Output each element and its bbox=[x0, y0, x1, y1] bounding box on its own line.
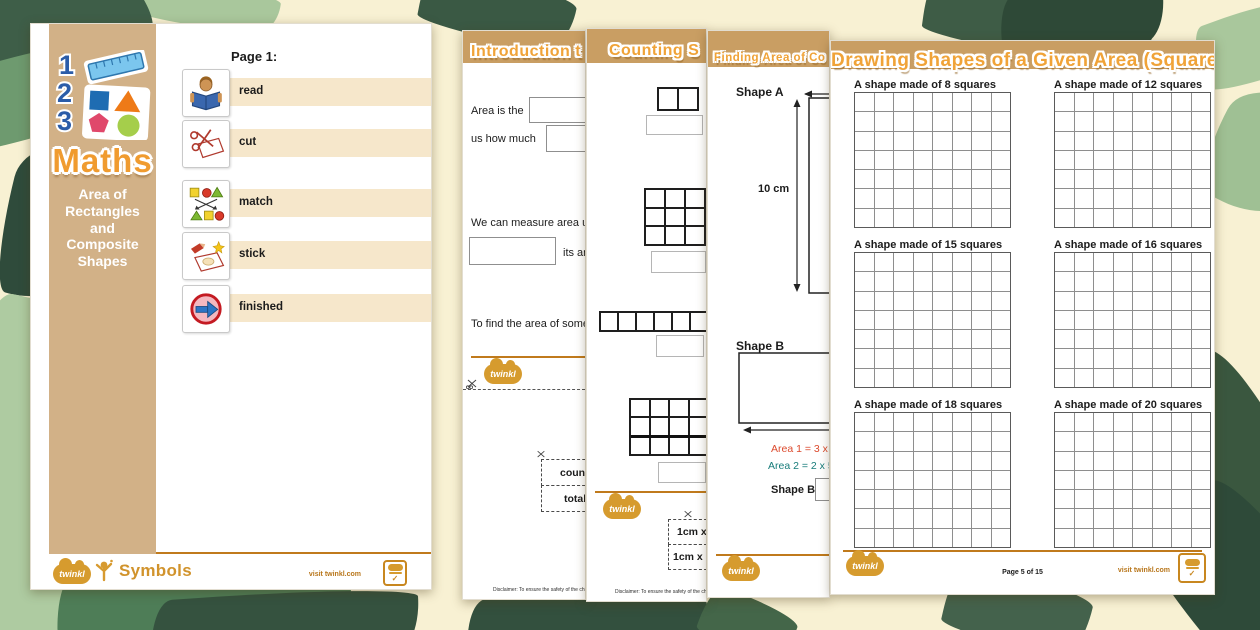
activity-label: match bbox=[239, 196, 273, 208]
worksheet-page-cover: 1 2 3 bbox=[30, 23, 432, 590]
badge-check-icon: ✓ bbox=[1189, 570, 1196, 577]
twinkl-stamp-badge: ✓ bbox=[1178, 553, 1206, 583]
activity-label: finished bbox=[239, 301, 283, 313]
drawing-grid bbox=[854, 412, 1011, 548]
maths-shapes-graphic: 1 2 3 bbox=[51, 50, 153, 140]
read-icon bbox=[187, 74, 225, 112]
activity-stripe bbox=[197, 189, 431, 217]
symbols-person-icon bbox=[93, 558, 115, 584]
activity-stripe bbox=[197, 294, 431, 322]
visit-link-text: visit twinkl.com bbox=[1118, 567, 1170, 574]
answer-box bbox=[656, 335, 704, 357]
grid-section-label: A shape made of 16 squares bbox=[1054, 239, 1202, 251]
drawing-grid bbox=[1054, 412, 1211, 548]
grid-section-label: A shape made of 18 squares bbox=[854, 399, 1002, 411]
activity-stripe bbox=[197, 129, 431, 157]
cover-sidebar: 1 2 3 bbox=[49, 24, 156, 554]
drawing-grid bbox=[1054, 252, 1211, 388]
symbols-label: Symbols bbox=[119, 561, 192, 581]
match-icon bbox=[187, 185, 225, 223]
activity-label: read bbox=[239, 85, 263, 97]
worksheet-text: Area is the bbox=[471, 105, 524, 117]
answer-box bbox=[646, 115, 703, 135]
grid-section-label: A shape made of 8 squares bbox=[854, 79, 996, 91]
footer-rule bbox=[471, 356, 585, 358]
worksheet-page-drawing-shapes: Drawing Shapes of a Given Area (Squares)… bbox=[830, 40, 1215, 595]
twinkl-logo: twinkl bbox=[484, 364, 522, 384]
answer-box bbox=[546, 125, 586, 152]
cut-out-label-row: 1cm x bbox=[668, 519, 707, 545]
svg-text:1: 1 bbox=[59, 50, 74, 80]
worksheet-text: To find the area of some bbox=[471, 318, 586, 330]
answer-box bbox=[658, 462, 706, 483]
badge-cloud-icon bbox=[388, 564, 403, 571]
maths-brand-title: Maths bbox=[49, 142, 156, 180]
svg-text:2: 2 bbox=[57, 78, 72, 108]
badge-check-icon: ✓ bbox=[392, 575, 399, 582]
answer-box bbox=[469, 237, 556, 265]
scissors-icon bbox=[536, 450, 546, 459]
drawing-grid bbox=[854, 252, 1011, 388]
scissors-icon bbox=[466, 379, 478, 389]
activity-label: stick bbox=[239, 248, 265, 260]
cut-out-label-row: 1cm x 1 bbox=[668, 544, 707, 570]
page1-heading: Page 1: bbox=[231, 49, 277, 64]
scissors-icon bbox=[683, 510, 693, 519]
grid-section-label: A shape made of 20 squares bbox=[1054, 399, 1202, 411]
twinkl-logo: twinkl bbox=[603, 499, 641, 519]
cut-out-table-row: count bbox=[541, 459, 586, 486]
worksheet-text: We can measure area us bbox=[471, 217, 586, 229]
activity-label: cut bbox=[239, 136, 256, 148]
answer-box bbox=[529, 97, 586, 123]
worksheet-page-finding-area: Finding Area of Co Shape A 10 cm Shape B… bbox=[707, 30, 830, 598]
height-dimension-label: 10 cm bbox=[758, 183, 789, 195]
activity-card-match bbox=[182, 180, 230, 228]
disclaimer-text: Disclaimer: To ensure the safety of the … bbox=[493, 587, 586, 593]
area2-equation: Area 2 = 2 x 5 bbox=[768, 460, 830, 472]
twinkl-stamp-badge: ✓ bbox=[383, 560, 407, 586]
answer-box bbox=[815, 478, 830, 501]
counting-grid bbox=[657, 87, 699, 111]
shapes-icon bbox=[82, 84, 151, 140]
pack-subtitle: Area of Rectangles and Composite Shapes bbox=[49, 186, 156, 270]
activity-card-finished bbox=[182, 285, 230, 333]
drawing-grid bbox=[854, 92, 1011, 228]
disclaimer-text: Disclaimer: To ensure the safety of the … bbox=[615, 589, 707, 595]
cut-icon bbox=[187, 125, 225, 163]
counting-grid bbox=[644, 188, 707, 246]
grid-section-label: A shape made of 12 squares bbox=[1054, 79, 1202, 91]
answer-box bbox=[651, 251, 706, 273]
twinkl-logo: twinkl bbox=[53, 564, 91, 584]
badge-cloud-icon bbox=[1185, 559, 1200, 566]
activity-stripe bbox=[197, 78, 431, 106]
grid-section-label: A shape made of 15 squares bbox=[854, 239, 1002, 251]
visit-link-text: visit twinkl.com bbox=[309, 571, 361, 578]
shape-b-label: Shape B bbox=[736, 339, 784, 353]
activity-card-read bbox=[182, 69, 230, 117]
twinkl-symbols-logo: Symbols bbox=[93, 558, 192, 584]
cut-line bbox=[463, 389, 585, 390]
twinkl-logo: twinkl bbox=[722, 561, 760, 581]
cut-out-table-row: total bbox=[541, 485, 586, 512]
worksheet-title: Counting S bbox=[609, 42, 699, 60]
activity-stripe bbox=[197, 241, 431, 269]
footer-rule bbox=[843, 550, 1202, 552]
worksheet-page-counting: Counting S twinkl 1cm x 1cm x 1 Disclaim… bbox=[586, 28, 707, 602]
activity-card-cut bbox=[182, 120, 230, 168]
footer-rule bbox=[156, 552, 431, 554]
worksheet-title: Drawing Shapes of a Given Area (Squares) bbox=[831, 50, 1214, 72]
drawing-grid bbox=[1054, 92, 1211, 228]
worksheet-title: Introduction t bbox=[471, 43, 581, 61]
shape-diagrams bbox=[708, 31, 830, 598]
preview-canvas: 1 2 3 bbox=[0, 0, 1260, 630]
area1-equation: Area 1 = 3 x 2 bbox=[771, 443, 830, 455]
worksheet-text: its area bbox=[563, 247, 586, 259]
finished-icon bbox=[186, 289, 226, 329]
worksheet-page-introduction: Introduction t Area is the us how much W… bbox=[462, 30, 586, 600]
counting-grid bbox=[629, 398, 707, 456]
worksheet-text: us how much bbox=[471, 133, 536, 145]
ruler-icon bbox=[83, 50, 149, 85]
stick-icon bbox=[187, 237, 225, 275]
svg-text:3: 3 bbox=[57, 106, 72, 136]
counting-grid bbox=[599, 311, 707, 332]
activity-card-stick bbox=[182, 232, 230, 280]
